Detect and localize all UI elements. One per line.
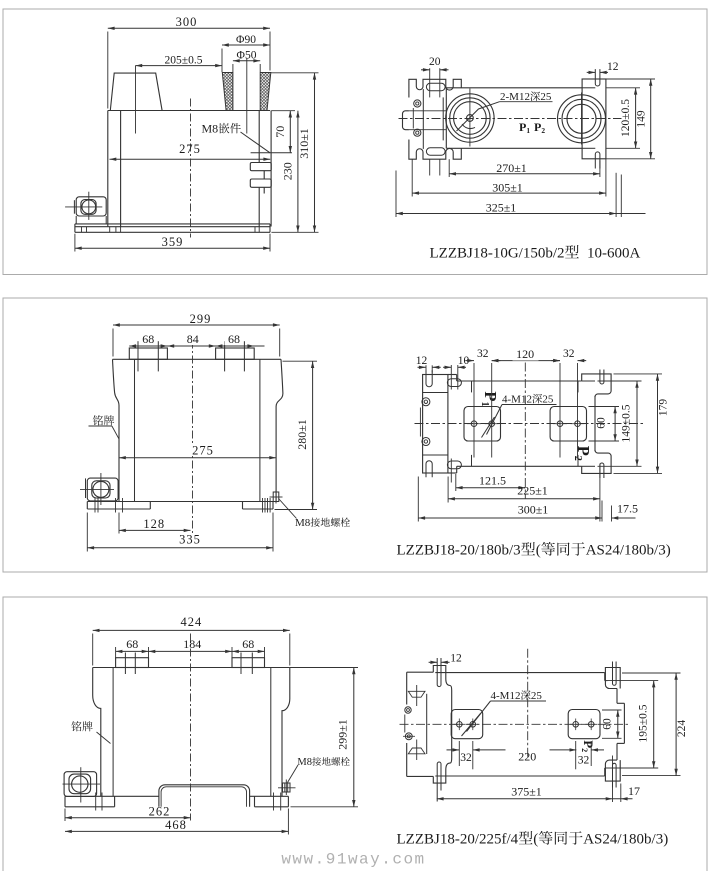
- svg-text:299±1: 299±1: [336, 719, 350, 750]
- svg-text:32: 32: [460, 752, 472, 764]
- svg-text:225±1: 225±1: [517, 484, 548, 498]
- svg-text:LZZBJ18-20/225f/4: LZZBJ18-20/225f/4: [397, 832, 519, 848]
- svg-text:4-M12: 4-M12: [502, 394, 532, 406]
- svg-text:70: 70: [273, 126, 287, 138]
- svg-text:68: 68: [228, 332, 240, 346]
- svg-text:M8: M8: [297, 757, 312, 768]
- svg-text:68: 68: [126, 637, 138, 651]
- svg-text:84: 84: [187, 332, 199, 346]
- svg-text:(: (: [533, 832, 538, 848]
- svg-text:121.5: 121.5: [479, 474, 506, 488]
- svg-text:262: 262: [149, 805, 171, 819]
- svg-text:25: 25: [542, 394, 554, 406]
- svg-text:270±1: 270±1: [496, 161, 527, 175]
- svg-text:LZZBJ18-20/180b/3: LZZBJ18-20/180b/3: [397, 543, 521, 559]
- svg-text:LZZBJ18-10G/150b/2: LZZBJ18-10G/150b/2: [430, 246, 565, 262]
- svg-text:195±0.5: 195±0.5: [638, 704, 650, 742]
- svg-text:230: 230: [281, 162, 295, 180]
- svg-text:280±1: 280±1: [295, 419, 309, 450]
- svg-text:375±1: 375±1: [511, 785, 542, 799]
- svg-text:32: 32: [563, 348, 575, 360]
- svg-text:17.5: 17.5: [617, 502, 638, 516]
- svg-text:468: 468: [165, 818, 187, 832]
- svg-text:60: 60: [602, 718, 614, 730]
- svg-text:4-M12: 4-M12: [491, 690, 521, 702]
- svg-text:220: 220: [518, 750, 536, 764]
- svg-text:17: 17: [628, 784, 640, 798]
- svg-text:12: 12: [607, 61, 619, 73]
- svg-text:325±1: 325±1: [486, 201, 517, 215]
- svg-text:68: 68: [142, 332, 154, 346]
- svg-text:M8: M8: [295, 517, 311, 529]
- svg-text:224: 224: [676, 720, 688, 738]
- svg-text:12: 12: [416, 355, 428, 367]
- svg-text:AS24/180b/3): AS24/180b/3): [583, 832, 668, 848]
- svg-text:Φ50: Φ50: [237, 50, 257, 62]
- svg-text:32: 32: [578, 755, 590, 767]
- svg-text:128: 128: [143, 517, 165, 531]
- svg-text:424: 424: [181, 615, 203, 629]
- svg-text:300±1: 300±1: [518, 503, 549, 517]
- svg-text:68: 68: [242, 637, 254, 651]
- svg-text:32: 32: [477, 348, 489, 360]
- svg-text:184: 184: [183, 637, 201, 651]
- svg-text:205±0.5: 205±0.5: [165, 55, 203, 67]
- svg-text:275: 275: [179, 142, 201, 156]
- svg-text:335: 335: [179, 533, 201, 547]
- svg-text:AS24/180b/3): AS24/180b/3): [586, 543, 671, 559]
- svg-text:310±1: 310±1: [297, 128, 311, 159]
- svg-text:M8: M8: [202, 122, 219, 136]
- svg-text:12: 12: [450, 652, 462, 664]
- svg-text:275: 275: [192, 443, 214, 457]
- svg-text:179: 179: [658, 399, 670, 417]
- svg-text:20: 20: [429, 56, 441, 68]
- svg-text:149±0.5: 149±0.5: [621, 404, 633, 442]
- svg-text:359: 359: [162, 235, 184, 249]
- svg-text:60: 60: [595, 417, 607, 429]
- svg-text:300: 300: [176, 15, 198, 29]
- svg-text:10-600A: 10-600A: [580, 246, 641, 262]
- svg-text:www.91way.com: www.91way.com: [281, 851, 425, 869]
- svg-text:305±1: 305±1: [492, 180, 523, 194]
- svg-text:120±0.5: 120±0.5: [620, 99, 632, 137]
- svg-text:(: (: [536, 543, 541, 559]
- svg-text:Φ90: Φ90: [236, 34, 256, 46]
- svg-text:149: 149: [635, 110, 647, 128]
- svg-text:25: 25: [531, 690, 543, 702]
- svg-text:299: 299: [190, 312, 212, 326]
- svg-text:120: 120: [516, 347, 534, 361]
